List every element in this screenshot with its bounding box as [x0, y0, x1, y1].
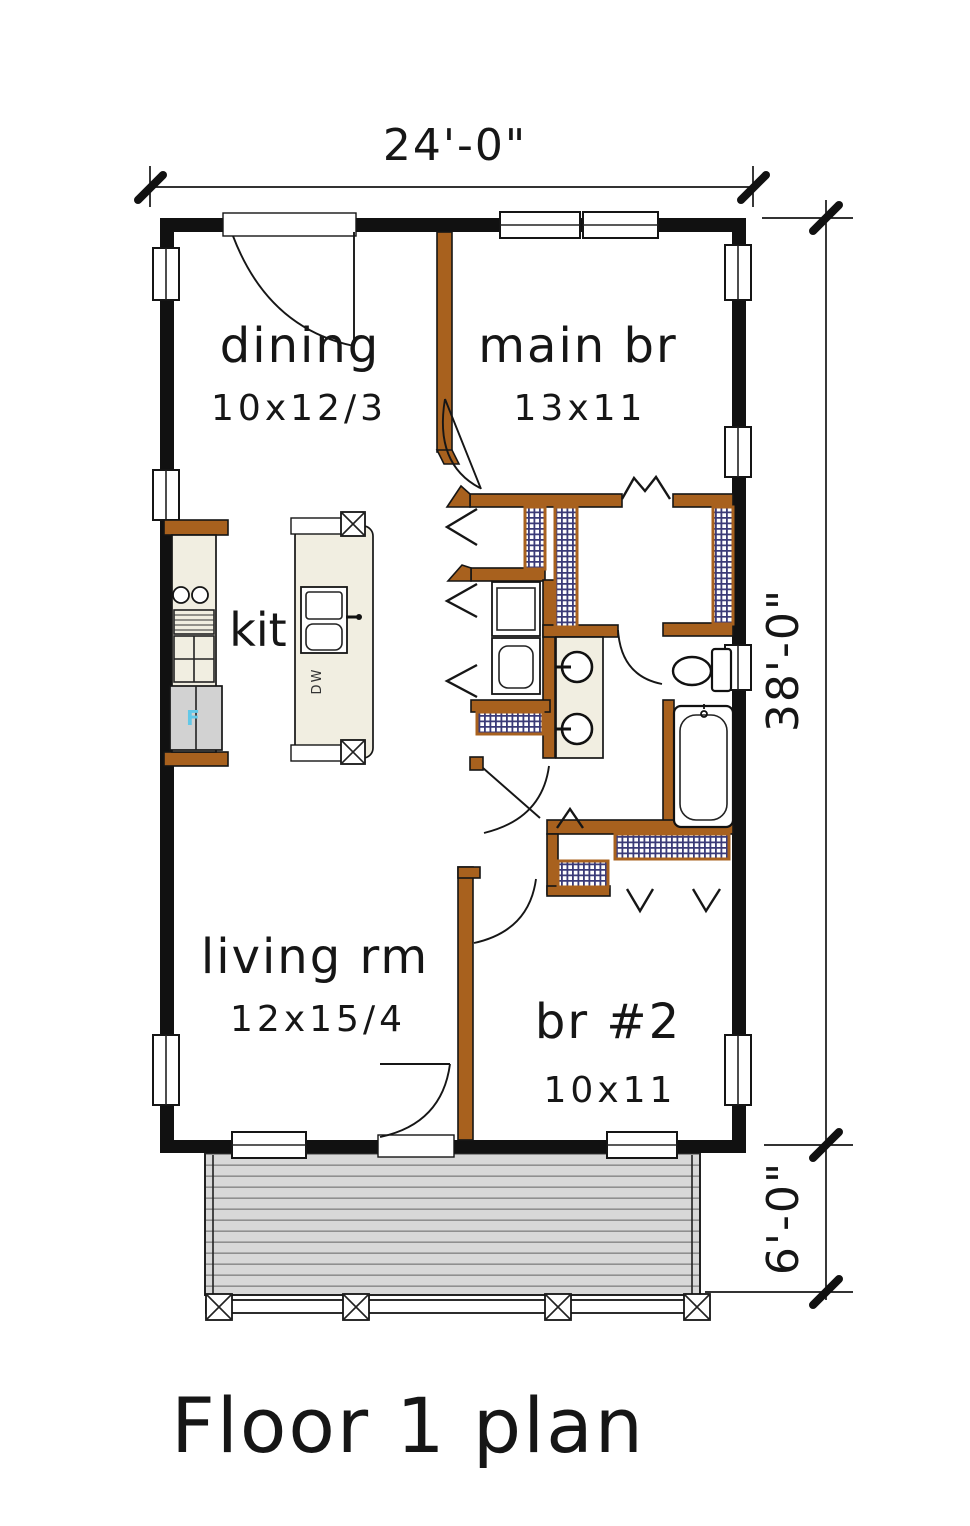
room-size-br2: 10x11 — [544, 1070, 677, 1111]
wall-segment — [663, 700, 674, 827]
width-dimension-label: 24'-0" — [383, 120, 527, 171]
room-size-living: 12x15/4 — [230, 999, 406, 1040]
door-opening — [223, 213, 356, 236]
room-label-dining: dining — [220, 318, 380, 374]
bifold-door-symbol — [627, 889, 653, 911]
wall-segment — [470, 757, 483, 770]
porch-post — [206, 1294, 232, 1320]
wall-segment — [437, 232, 452, 452]
front-door — [380, 1064, 450, 1137]
wall-segment — [547, 834, 558, 894]
bathtub — [674, 704, 733, 827]
porch-dimension-label: 6'-0" — [758, 1161, 809, 1275]
porch-rail — [206, 1300, 698, 1313]
porch-deck — [205, 1153, 700, 1295]
hatched-wall — [615, 834, 729, 859]
dimension-top: 24'-0" — [138, 120, 766, 207]
room-label-main-br: main br — [478, 318, 677, 374]
wall-segment — [164, 520, 228, 535]
porch — [205, 1153, 710, 1320]
wall-segment — [471, 700, 550, 712]
wall-segment — [458, 867, 480, 878]
wall-segment — [470, 494, 622, 507]
porch-post — [343, 1294, 369, 1320]
room-label-living: living rm — [201, 929, 429, 985]
double-vanity — [556, 637, 603, 758]
washer — [492, 582, 540, 636]
door-opening — [378, 1135, 454, 1157]
height-dimension-label: 38'-0" — [758, 588, 809, 732]
toilet — [673, 649, 731, 691]
dishwasher-label: DW — [310, 668, 325, 695]
wall-segment — [448, 565, 471, 581]
wall-segment — [543, 580, 555, 758]
br2-door — [474, 879, 536, 943]
porch-post — [545, 1294, 571, 1320]
room-size-main-br: 13x11 — [514, 388, 647, 429]
hatched-wall — [525, 507, 545, 569]
wall-segment — [673, 494, 733, 507]
wall-segment — [458, 867, 473, 1140]
hall-bath-door — [483, 766, 549, 833]
bifold-door-symbol — [693, 889, 720, 911]
room-label-kit: kit — [229, 603, 286, 657]
kitchen-island: DW — [291, 512, 373, 764]
floor-plan-page: F DW — [0, 0, 970, 1522]
refrigerator: F — [170, 686, 222, 750]
wall-segment — [447, 486, 470, 507]
fridge-label: F — [186, 706, 200, 730]
closet-door-chevron — [447, 665, 477, 697]
room-size-dining: 10x12/3 — [211, 388, 387, 429]
hatched-wall — [477, 712, 543, 734]
hatched-wall — [555, 507, 577, 627]
hatched-wall — [713, 507, 733, 624]
wall-segment — [164, 752, 228, 766]
floor-plan-canvas: F DW — [0, 0, 970, 1522]
bifold-door-zigzag — [622, 477, 670, 499]
hatched-wall — [558, 861, 608, 887]
toilet-room-door — [618, 630, 662, 684]
room-label-br2: br #2 — [535, 994, 681, 1050]
page-title: Floor 1 plan — [171, 1381, 645, 1470]
dryer — [492, 638, 540, 694]
closet-door-chevron — [447, 584, 477, 617]
porch-post — [684, 1294, 710, 1320]
closet-door-chevron — [447, 509, 477, 545]
